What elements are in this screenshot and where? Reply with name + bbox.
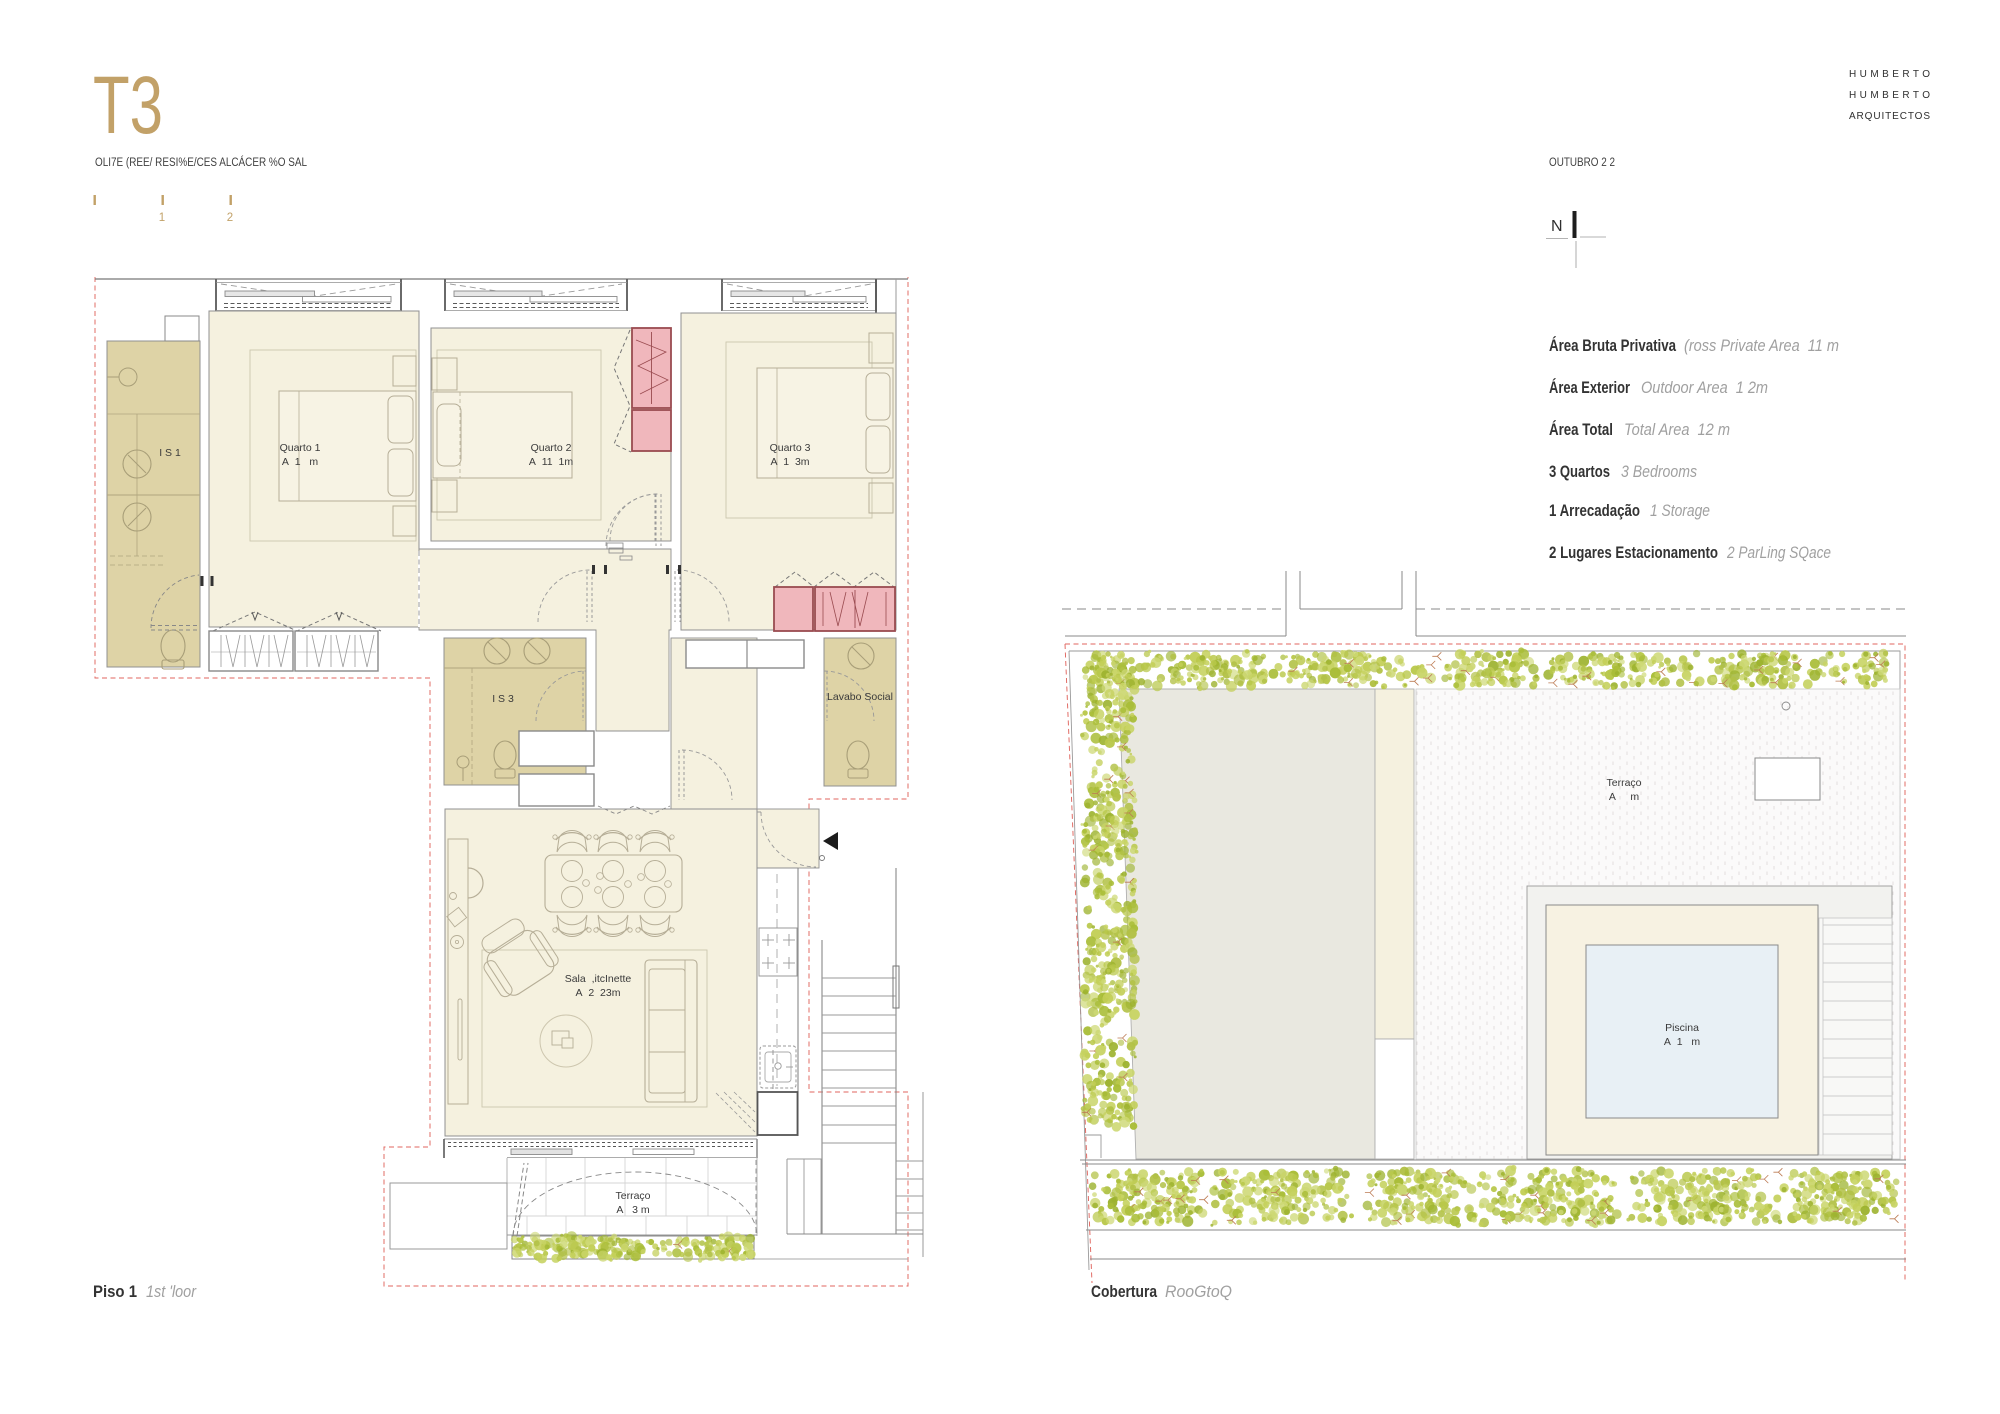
svg-text:Piso 1: Piso 1: [93, 1283, 137, 1301]
svg-text:A 1 3m: A 1 3m: [770, 456, 809, 468]
svg-text:ARQUITECTOS: ARQUITECTOS: [1849, 111, 1930, 122]
svg-text:A 3 m: A 3 m: [616, 1204, 650, 1216]
svg-text:2 ParLing SQace: 2 ParLing SQace: [1726, 544, 1831, 562]
svg-text:N: N: [1551, 218, 1563, 235]
svg-text:Quarto 1: Quarto 1: [280, 442, 321, 454]
svg-text:Lavabo Social: Lavabo Social: [827, 691, 893, 703]
svg-text:1st 'loor: 1st 'loor: [146, 1283, 197, 1301]
svg-text:T3: T3: [93, 60, 163, 151]
svg-text:(ross Private Area 11 m: (ross Private Area 11 m: [1684, 337, 1839, 355]
svg-text:1 Storage: 1 Storage: [1650, 502, 1710, 520]
svg-text:Área Total: Área Total: [1549, 420, 1613, 439]
svg-text:A m: A m: [1609, 791, 1640, 803]
svg-text:I S 3: I S 3: [492, 693, 514, 705]
svg-text:Total Area 12 m: Total Area 12 m: [1624, 421, 1730, 439]
svg-text:Terraço: Terraço: [615, 1190, 650, 1202]
svg-text:A 1 m: A 1 m: [282, 456, 318, 468]
svg-text:1 Arrecadação: 1 Arrecadação: [1549, 502, 1640, 520]
svg-text:Cobertura: Cobertura: [1091, 1283, 1158, 1301]
svg-text:Área Bruta Privativa: Área Bruta Privativa: [1549, 336, 1677, 355]
svg-text:RooGtoQ: RooGtoQ: [1165, 1283, 1232, 1301]
svg-text:Área Exterior: Área Exterior: [1549, 378, 1630, 397]
svg-text:1: 1: [159, 212, 165, 224]
svg-text:Outdoor Area 1 2m: Outdoor Area 1 2m: [1641, 379, 1768, 397]
svg-text:2 Lugares Estacionamento: 2 Lugares Estacionamento: [1549, 544, 1718, 562]
svg-text:OLI7E (REE/ RESI%E/CES ALCÁCE: OLI7E (REE/ RESI%E/CES ALCÁCER %O SAL: [95, 156, 308, 169]
svg-text:OUTUBRO 2 2: OUTUBRO 2 2: [1549, 157, 1615, 169]
svg-text:Quarto 3: Quarto 3: [770, 442, 811, 454]
svg-text:3 Quartos: 3 Quartos: [1549, 463, 1610, 481]
svg-text:Quarto 2: Quarto 2: [531, 442, 572, 454]
svg-text:A 1 m: A 1 m: [1664, 1036, 1700, 1048]
svg-text:3 Bedrooms: 3 Bedrooms: [1621, 463, 1697, 481]
svg-text:A 2 23m: A 2 23m: [576, 987, 621, 999]
svg-text:A 11 1m: A 11 1m: [529, 456, 573, 468]
svg-text:Terraço: Terraço: [1606, 777, 1641, 789]
svg-text:Piscina: Piscina: [1665, 1022, 1699, 1034]
svg-text:Sala ,itcInette: Sala ,itcInette: [565, 973, 632, 985]
svg-text:2: 2: [227, 212, 233, 224]
svg-text:I S 1: I S 1: [159, 447, 181, 459]
